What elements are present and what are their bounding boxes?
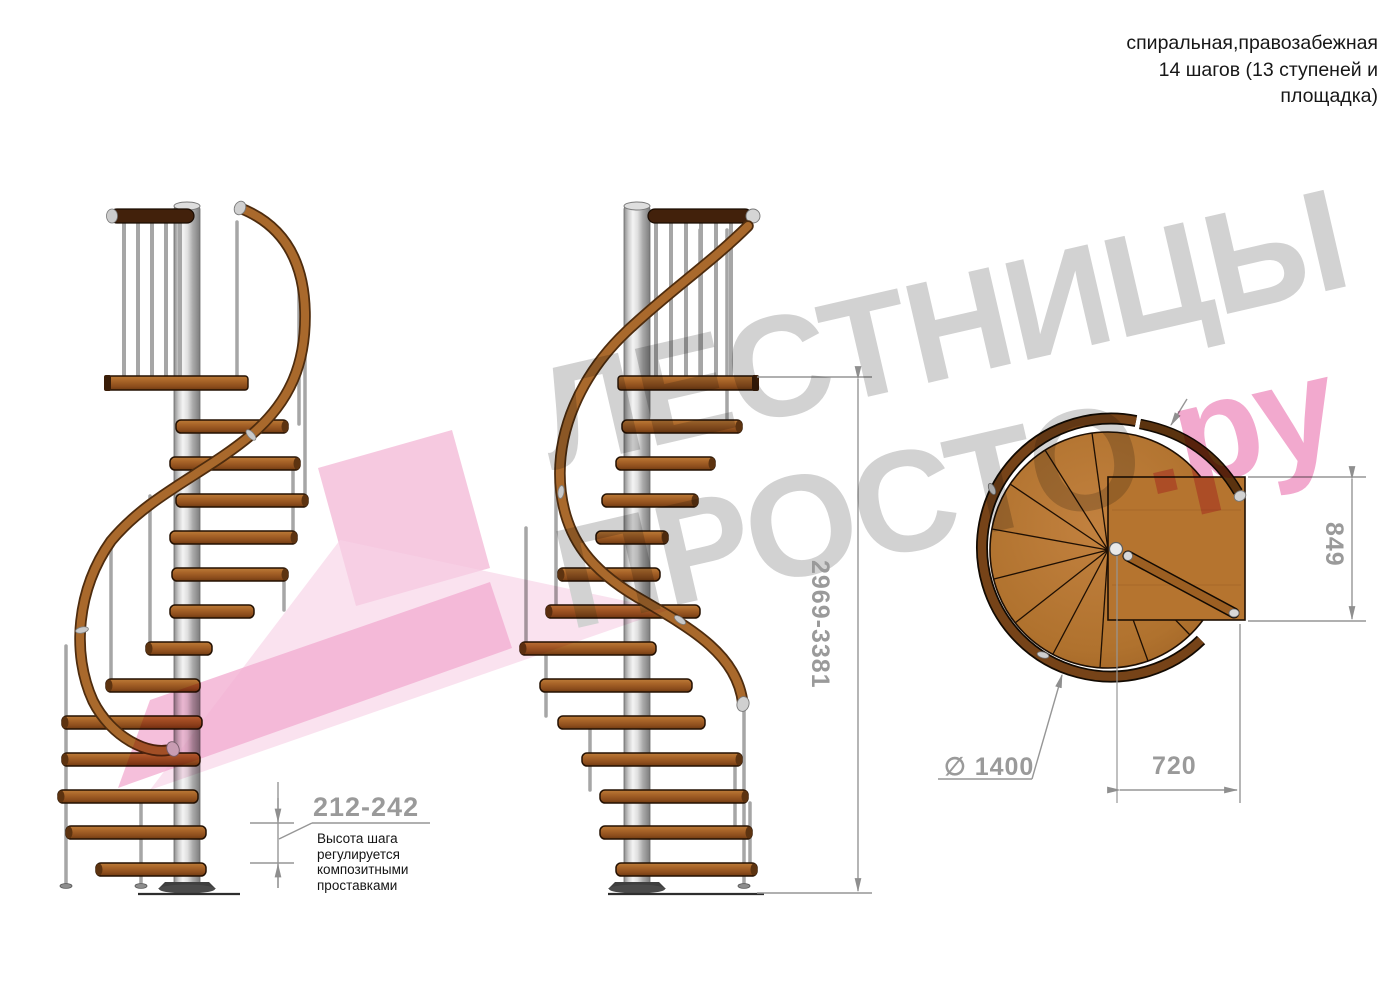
step-height-note: Высота шага регулируется композитными пр… bbox=[317, 831, 408, 893]
landing-platform-plan bbox=[1108, 477, 1245, 620]
dimension-total-height: 2969-3381 bbox=[805, 560, 834, 689]
landing-platform bbox=[104, 375, 248, 391]
note-line-1: Высота шага bbox=[317, 831, 408, 847]
technical-drawing-page: ЛЕСТНИЦЫ ПРОСТО.ру спиральная,правозабеж… bbox=[0, 0, 1400, 1000]
staircase-side-view-left bbox=[58, 199, 309, 894]
dimension-landing-depth: 849 bbox=[1319, 522, 1348, 567]
title-line-3: площадка) bbox=[1126, 83, 1378, 110]
note-line-4: проставками bbox=[317, 878, 408, 894]
staircase-plan-view bbox=[982, 419, 1248, 677]
dimension-diameter: ∅ 1400 bbox=[944, 752, 1034, 782]
note-line-3: композитными bbox=[317, 862, 408, 878]
drawing-title: спиральная,правозабежная 14 шагов (13 ст… bbox=[1126, 30, 1378, 110]
dimension-landing-width: 720 bbox=[1152, 752, 1197, 781]
upper-landing-railing bbox=[107, 209, 195, 376]
title-line-2: 14 шагов (13 ступеней и bbox=[1126, 57, 1378, 84]
dimension-step-height: 212-242 bbox=[313, 792, 419, 823]
title-line-1: спиральная,правозабежная bbox=[1126, 30, 1378, 57]
note-line-2: регулируется bbox=[317, 847, 408, 863]
baluster-foot bbox=[738, 884, 750, 889]
staircase-side-view-right bbox=[520, 202, 765, 894]
baluster-foot bbox=[135, 884, 147, 889]
spiral-staircase-drawing bbox=[0, 0, 1400, 1000]
landing-platform bbox=[618, 375, 759, 391]
baluster-foot bbox=[60, 884, 72, 889]
center-pole-plan bbox=[1110, 543, 1123, 556]
